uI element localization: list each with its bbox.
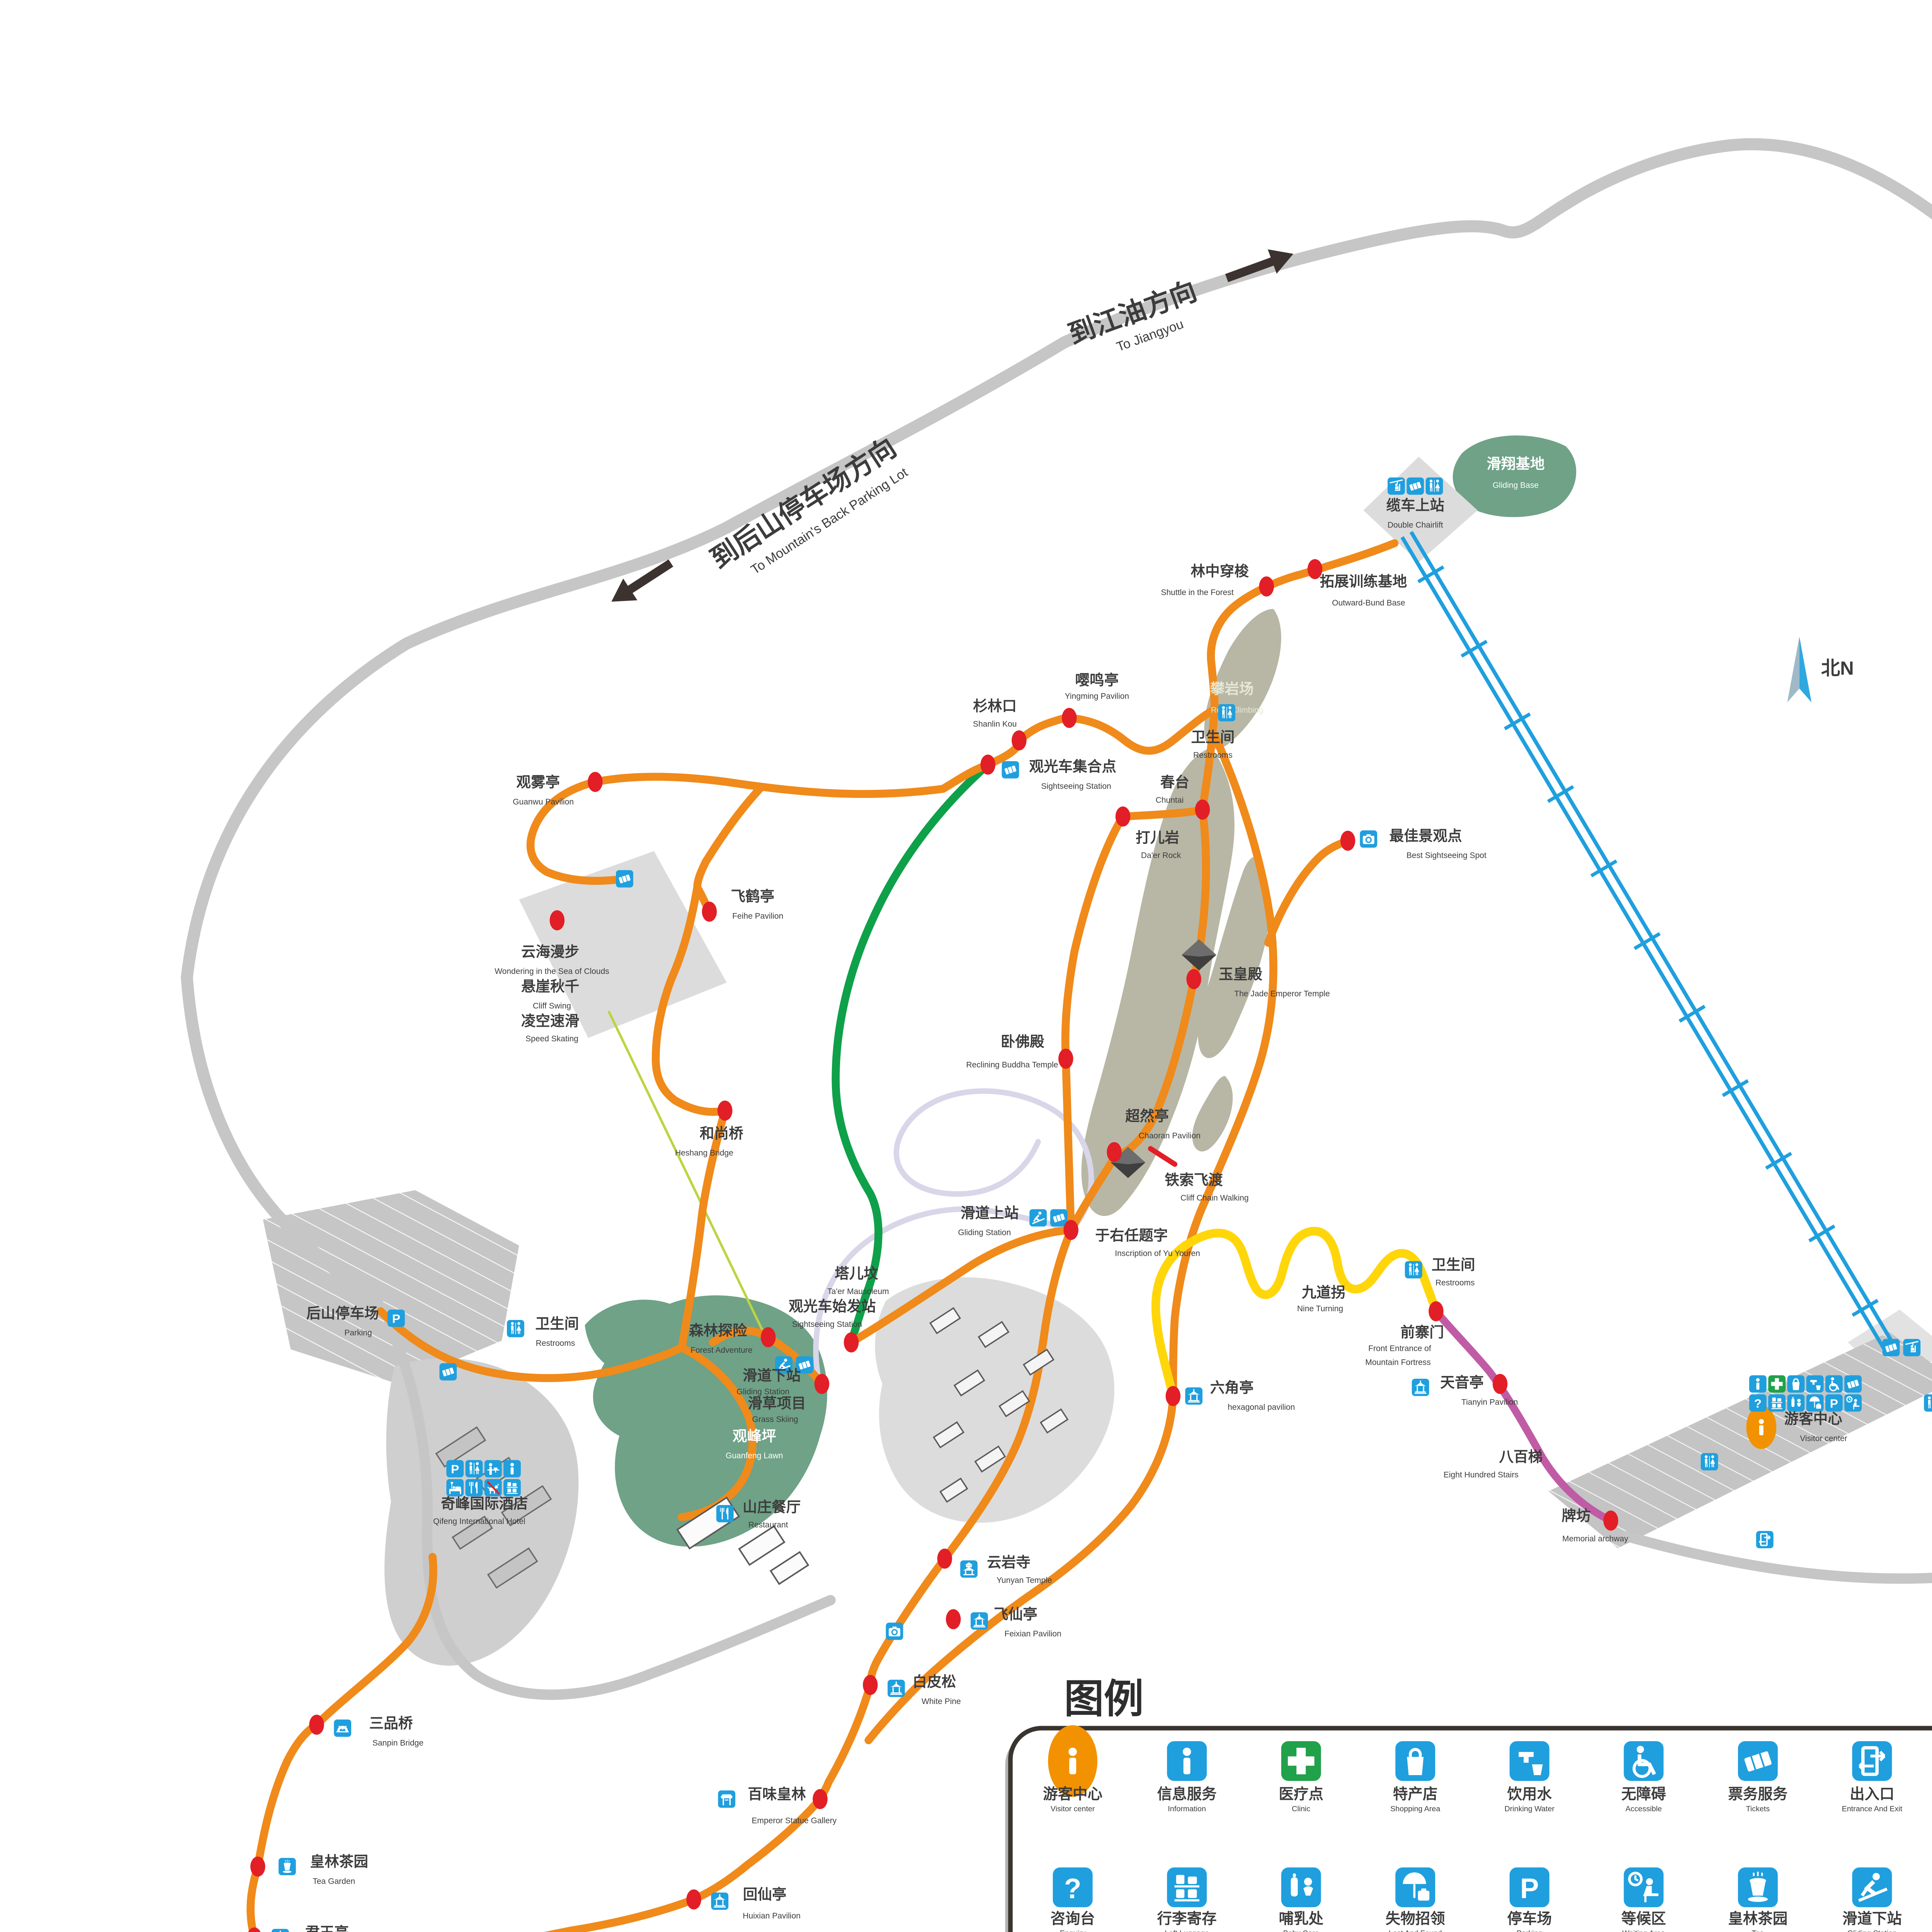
pavilion-icon	[888, 1680, 905, 1697]
sanpin-bridge-label-cn: 三品桥	[369, 1715, 413, 1731]
tianyin-pavilion-dot[interactable]	[1493, 1374, 1508, 1394]
feixian-pavilion[interactable]: 飞仙亭Feixian Pavilion	[946, 1606, 1061, 1638]
legend-item-baby-care: 哺乳处Baby Care	[1279, 1867, 1323, 1932]
restroom-west[interactable]: 卫生间Restrooms	[507, 1315, 579, 1348]
shuttle-forest-label-cn: 林中穿梭	[1191, 563, 1249, 579]
restroom-west-label-cn: 卫生间	[535, 1315, 579, 1332]
legend-label-en: Waiting Area	[1622, 1929, 1665, 1932]
hexagonal-pavilion-label-en: hexagonal pavilion	[1228, 1403, 1295, 1412]
ticket-icon	[1050, 1209, 1068, 1226]
tea-icon	[1738, 1867, 1778, 1907]
restroom-mid[interactable]: 卫生间Restrooms	[1405, 1257, 1475, 1321]
legend-label-en: Gliding Station	[1847, 1929, 1897, 1932]
legend-label-en: Drinking Water	[1505, 1804, 1555, 1813]
sightseeing-meeting-point-label-en: Sightseeing Station	[1041, 782, 1111, 791]
north-compass: 北N	[1787, 637, 1854, 702]
visitor-connector-road	[1626, 1522, 1932, 1579]
north-arrow-icon-right	[1799, 637, 1811, 702]
parking-icon	[446, 1460, 464, 1478]
villa-restaurant-label-cn: 山庄餐厅	[743, 1499, 801, 1515]
feihe-pavilion[interactable]: 飞鹤亭Feihe Pavilion	[702, 888, 784, 922]
shanlin-kou[interactable]: 杉林口Shanlin Kou	[973, 698, 1027, 750]
best-sightseeing-spot-label-en: Best Sightseeing Spot	[1406, 851, 1486, 860]
front-entrance-fortress[interactable]: 前寨门Front Entrance ofMountain Fortress	[1365, 1324, 1444, 1367]
yunyan-temple-dot[interactable]	[937, 1549, 952, 1569]
legend-label-cn: 停车场	[1507, 1910, 1552, 1927]
yingming-pavilion-dot[interactable]	[1062, 708, 1077, 728]
feihe-pavilion-dot[interactable]	[702, 901, 717, 922]
pavilion-icon	[1185, 1388, 1202, 1405]
legend-label-cn: 饮用水	[1507, 1786, 1552, 1803]
camera-icon	[886, 1622, 903, 1640]
visitor-icon	[1746, 1405, 1776, 1449]
daer-rock-dot[interactable]	[1116, 806, 1131, 827]
shuttle-forest-label-en: Shuttle in the Forest	[1161, 588, 1233, 597]
front-entrance-fortress-label-en2: Mountain Fortress	[1365, 1358, 1430, 1367]
emperor-statue-gallery-dot[interactable]	[813, 1789, 828, 1809]
question-icon	[1749, 1394, 1767, 1412]
cliff-chain-walking-label-cn: 铁索飞渡	[1165, 1172, 1223, 1188]
feihe-pavilion-label-en: Feihe Pavilion	[732, 912, 783, 920]
front-entrance-fortress-label-cn: 前寨门	[1400, 1324, 1444, 1340]
restroom-icon	[465, 1460, 483, 1478]
qifeng-hotel-label-en: Qifeng International Hotel	[433, 1517, 526, 1526]
wheelchair-icon	[1825, 1375, 1843, 1393]
outward-bound-base-label-cn: 拓展训练基地	[1320, 573, 1407, 590]
pavilion-icon	[1412, 1379, 1429, 1396]
restroom-west-label-en: Restrooms	[536, 1339, 575, 1348]
huixian-pavilion-label-cn: 回仙亭	[743, 1886, 787, 1903]
yu-youren-inscription-label-en: Inscription of Yu Youren	[1115, 1249, 1200, 1258]
guanwu-pavilion-label-cn: 观雾亭	[516, 774, 560, 790]
legend-item-enquiry: 咨询台Enquiry	[1050, 1867, 1095, 1932]
map-canvas[interactable]: ? P	[0, 0, 1932, 1932]
reclining-buddha-temple-label-en: Reclining Buddha Temple	[966, 1060, 1058, 1069]
shanlin-kou-label-en: Shanlin Kou	[973, 719, 1017, 728]
eight-hundred-stairs-label-en: Eight Hundred Stairs	[1444, 1470, 1519, 1479]
legend-label-cn: 信息服务	[1157, 1786, 1217, 1803]
sightseeing-meeting-point-label-cn: 观光车集合点	[1029, 759, 1116, 775]
cloud-sea-walk-dot[interactable]	[550, 910, 565, 930]
exit-vc[interactable]	[1756, 1531, 1774, 1548]
cliff-chain-walking[interactable]: 铁索飞渡Cliff Chain Walking	[1165, 1172, 1248, 1202]
legend-title: 图例	[1064, 1677, 1144, 1721]
chuntai-dot[interactable]	[1195, 799, 1210, 820]
waiting-icon	[1624, 1867, 1663, 1907]
legend-label-cn: 无障碍	[1621, 1786, 1666, 1803]
camera-icon	[1360, 830, 1377, 848]
cliff-swing-label-cn: 悬崖秋千	[521, 978, 579, 994]
info-icon	[1749, 1375, 1767, 1393]
nine-turning-label-cn: 九道拐	[1302, 1284, 1345, 1301]
restroom-icon	[1218, 704, 1235, 721]
nine-turning[interactable]: 九道拐Nine Turning	[1297, 1284, 1345, 1313]
photo-point-west[interactable]	[886, 1622, 903, 1640]
restroom-mid-label-en: Restrooms	[1435, 1278, 1475, 1287]
feixian-pavilion-dot[interactable]	[946, 1609, 961, 1629]
gliding-base-label-en: Gliding Base	[1493, 481, 1539, 490]
exit-icon	[1756, 1531, 1774, 1548]
guanwu-pavilion-label-en: Guanwu Pavilion	[513, 798, 574, 806]
daer-rock-label-cn: 打儿岩	[1136, 829, 1179, 845]
legend-label-en: Visitor center	[1051, 1804, 1095, 1813]
info-icon	[1167, 1741, 1207, 1781]
legend-label-en: Tickets	[1746, 1804, 1770, 1813]
legend-item-waiting-area: 等候区Waiting Area	[1621, 1867, 1666, 1932]
eight-hundred-stairs[interactable]: 八百梯Eight Hundred Stairs	[1444, 1449, 1543, 1479]
bag-icon	[1395, 1741, 1435, 1781]
yunyan-temple[interactable]: 云岩寺Yunyan Temple	[937, 1549, 1052, 1585]
taer-mausoleum-label-en: Ta'er Mausoleum	[827, 1287, 889, 1296]
restroom-vc-west[interactable]	[1701, 1453, 1718, 1471]
legend-label-cn: 皇林茶园	[1728, 1910, 1787, 1927]
visitor-center-label-cn: 游客中心	[1784, 1411, 1842, 1427]
cable-top-station-label-en: Double Chairlift	[1388, 520, 1443, 529]
luggage-icon	[1768, 1394, 1786, 1412]
white-pine-label-cn: 白皮松	[913, 1673, 956, 1690]
jade-emperor-temple-label-cn: 玉皇殿	[1219, 966, 1262, 982]
legend-label-cn: 医疗点	[1279, 1786, 1323, 1803]
legend-label-cn: 行李寄存	[1157, 1910, 1217, 1927]
rock-climbing-label-cn: 攀岩场	[1210, 680, 1254, 697]
tea-garden-label-cn: 皇林茶园	[310, 1854, 368, 1870]
gliding-lower-station-label-cn: 滑道下站	[743, 1367, 801, 1384]
north-label: 北N	[1821, 658, 1854, 679]
restroom-icon	[1426, 478, 1443, 495]
legend-label-cn: 咨询台	[1050, 1910, 1095, 1927]
guanfeng-lawn-label-cn: 观峰坪	[733, 1428, 776, 1444]
chuntai-label-cn: 春台	[1160, 774, 1189, 790]
huixian-pavilion-label-en: Huixian Pavilion	[743, 1912, 801, 1920]
heshang-bridge-label-cn: 和尚桥	[700, 1125, 743, 1141]
tianyin-pavilion[interactable]: 天音亭Tianyin Pavilion	[1412, 1374, 1518, 1407]
visitor-center-label-en: Visitor center	[1800, 1434, 1847, 1443]
legend-label-en: Entrance And Exit	[1842, 1804, 1903, 1813]
forest-adventure-label-cn: 森林探险	[689, 1322, 747, 1338]
ticket-icon	[1738, 1741, 1778, 1781]
speed-skating-label-cn: 凌空速滑	[521, 1013, 579, 1029]
grass-skiing[interactable]: 滑草项目Grass Skiing	[748, 1395, 806, 1424]
restroom-icon	[1405, 1261, 1422, 1279]
temple-icon	[960, 1560, 978, 1578]
legend-label-en: Enquiry	[1060, 1929, 1086, 1932]
tianyin-pavilion-label-en: Tianyin Pavilion	[1461, 1398, 1518, 1406]
walking-path-best-spot-spur	[1268, 841, 1348, 943]
cloud-sea-walk-label-cn: 云海漫步	[521, 944, 579, 960]
legend-label-en: Lost And Found	[1389, 1929, 1442, 1932]
back-parking-direction: 到后山停车场方向 To Mountain's Back Parking Lot	[604, 415, 913, 651]
cliff-swing[interactable]: 悬崖秋千Cliff Swing	[521, 978, 579, 1010]
sightseeing-departure-station-label-en: Sightseeing Station	[792, 1320, 862, 1329]
waiting-icon	[1844, 1394, 1862, 1412]
walking-path-feihe-branch	[656, 787, 761, 1348]
feixian-pavilion-label-cn: 飞仙亭	[994, 1606, 1037, 1622]
legend-label-en: Clinic	[1292, 1804, 1310, 1813]
glide-icon	[1029, 1209, 1047, 1226]
hexagonal-pavilion-label-cn: 六角亭	[1210, 1379, 1254, 1396]
ticket-icon	[1883, 1339, 1900, 1356]
heshang-bridge-label-en: Heshang Bridge	[675, 1149, 733, 1158]
restroom-vc-east[interactable]	[1924, 1394, 1932, 1412]
huixian-pavilion-dot[interactable]	[686, 1889, 701, 1910]
grass-skiing-label-cn: 滑草项目	[748, 1395, 806, 1411]
water-icon	[1806, 1375, 1824, 1393]
legend-item-drinking-water: 饮用水Drinking Water	[1505, 1741, 1555, 1813]
sanpin-bridge-label-en: Sanpin Bridge	[372, 1738, 423, 1747]
legend-box	[1010, 1728, 1932, 1932]
chaoran-pavilion-label-en: Chaoran Pavilion	[1139, 1131, 1201, 1140]
speed-skating-label-en: Speed Skating	[526, 1034, 578, 1043]
white-pine-label-en: White Pine	[922, 1697, 961, 1706]
glide-icon	[1852, 1867, 1892, 1907]
legend: 图例 游客中心Visitor center信息服务Information医疗点C…	[1005, 1677, 1932, 1932]
grass-skiing-label-en: Grass Skiing	[752, 1415, 798, 1424]
chairlift-icon	[1903, 1339, 1920, 1356]
legend-label-en: Tea	[1752, 1929, 1764, 1932]
hexagonal-pavilion-dot[interactable]	[1166, 1386, 1181, 1406]
cable-top-station[interactable]: 缆车上站Double Chairlift	[1386, 478, 1444, 530]
guanwu-pavilion[interactable]: 观雾亭Guanwu Pavilion	[513, 772, 603, 806]
ticket-icon	[1002, 761, 1019, 779]
cliff-swing-label-en: Cliff Swing	[533, 1002, 571, 1010]
gliding-upper-station-label-en: Gliding Station	[958, 1228, 1011, 1237]
restroom-icon	[1924, 1394, 1932, 1412]
shuttle-forest-dot[interactable]	[1259, 577, 1274, 597]
memorial-archway-label-en: Memorial archway	[1562, 1534, 1628, 1543]
tea-garden-dot[interactable]	[250, 1857, 265, 1877]
lost-icon	[1395, 1867, 1435, 1907]
best-sightseeing-spot-label-cn: 最佳景观点	[1389, 828, 1462, 844]
eight-hundred-stairs-label-cn: 八百梯	[1499, 1449, 1543, 1465]
forest-adventure-dot[interactable]	[761, 1327, 776, 1347]
emperor-statue-gallery-label-en: Emperor Statue Gallery	[752, 1816, 837, 1825]
sightseeing-departure-station-label-cn: 观光车始发站	[789, 1298, 876, 1315]
legend-item-clinic: 医疗点Clinic	[1279, 1741, 1323, 1813]
yunyan-temple-label-cn: 云岩寺	[987, 1554, 1031, 1570]
heshang-bridge-dot[interactable]	[718, 1100, 733, 1121]
back-mountain-parking-label-cn: 后山停车场	[306, 1305, 379, 1321]
best-sightseeing-spot[interactable]: 最佳景观点Best Sightseeing Spot	[1340, 828, 1486, 860]
nopets-icon	[485, 1479, 502, 1497]
yingming-pavilion-label-cn: 嘤鸣亭	[1075, 672, 1119, 688]
legend-label-cn: 票务服务	[1728, 1786, 1788, 1803]
gliding-base-label-cn: 滑翔基地	[1486, 456, 1544, 472]
bridge-icon	[334, 1719, 351, 1737]
hexagonal-pavilion[interactable]: 六角亭hexagonal pavilion	[1166, 1379, 1295, 1412]
memorial-archway-label-cn: 牌坊	[1562, 1507, 1591, 1524]
legend-label-cn: 哺乳处	[1279, 1910, 1323, 1927]
emperor-statue-gallery-label-cn: 百味皇林	[748, 1786, 806, 1802]
restroom-mid-label-cn: 卫生间	[1432, 1257, 1475, 1273]
ticket-icon	[1844, 1375, 1862, 1393]
cable-top-station-label-cn: 缆车上站	[1386, 497, 1444, 514]
forkknife-icon	[716, 1505, 734, 1522]
sightseeing-meeting-point-dot[interactable]	[981, 755, 996, 775]
ticket-icon	[1406, 478, 1424, 495]
jiangyou-direction: 到江油方向 To Jiangyou	[1064, 240, 1305, 368]
daer-rock-label-en: Da'er Rock	[1141, 851, 1181, 860]
feixian-pavilion-label-en: Feixian Pavilion	[1005, 1629, 1061, 1638]
restroom-north-label-en: Restrooms	[1193, 751, 1233, 760]
speed-skating[interactable]: 凌空速滑Speed Skating	[521, 1013, 579, 1043]
villa-restaurant-label-en: Restaurant	[748, 1520, 788, 1529]
legend-label-cn: 游客中心	[1043, 1786, 1102, 1803]
legend-item-parking: 停车场Parking	[1507, 1867, 1552, 1932]
legend-label-en: Left Luggage	[1165, 1929, 1209, 1932]
tea-garden[interactable]: 皇林茶园Tea Garden	[250, 1854, 368, 1886]
lost-icon	[1806, 1394, 1824, 1412]
cloud-sea-walk-label-en: Wondering in the Sea of Clouds	[495, 967, 609, 976]
baby-icon	[1281, 1867, 1321, 1907]
yunyan-temple-label-en: Yunyan Temple	[997, 1576, 1052, 1585]
question-icon	[1053, 1867, 1093, 1907]
ticket-icon	[616, 870, 633, 888]
yu-youren-inscription-label-cn: 于右任题字	[1095, 1227, 1168, 1243]
bag-icon	[1787, 1375, 1804, 1393]
pavilion-icon	[971, 1612, 988, 1630]
parking-icon	[1510, 1867, 1549, 1907]
water-icon	[1510, 1741, 1549, 1781]
baby-icon	[1787, 1394, 1804, 1412]
chuntai-label-en: Chuntai	[1156, 796, 1184, 804]
legend-label-cn: 滑道下站	[1842, 1910, 1902, 1927]
restroom-mid-dot[interactable]	[1429, 1301, 1444, 1321]
reclining-buddha-temple-dot[interactable]	[1058, 1049, 1073, 1069]
legend-label-cn: 等候区	[1621, 1910, 1666, 1927]
guanfeng-lawn[interactable]: 观峰坪Guanfeng Lawn	[726, 1428, 783, 1460]
taer-mausoleum-label-cn: 塔儿坟	[835, 1265, 878, 1281]
outward-bound-base-label-en: Outward-Bund Base	[1332, 599, 1405, 607]
pavilion-icon	[711, 1893, 728, 1910]
junwang-pavilion[interactable]: 君王亭Junwang Pavilion	[247, 1924, 374, 1932]
feihe-pavilion-label-cn: 飞鹤亭	[731, 888, 774, 905]
legend-item-accessible: 无障碍Accessible	[1621, 1741, 1666, 1813]
legend-label-cn: 特产店	[1393, 1786, 1438, 1803]
ticket-icon	[439, 1363, 457, 1381]
archicon-icon	[718, 1791, 735, 1808]
legend-label-en: Baby Care	[1283, 1929, 1319, 1932]
restroom-icon	[1701, 1453, 1718, 1471]
tianyin-pavilion-label-cn: 天音亭	[1440, 1374, 1484, 1391]
gliding-upper-station-label-cn: 滑道上站	[961, 1205, 1019, 1221]
emperor-statue-gallery[interactable]: 百味皇林Emperor Statue Gallery	[718, 1786, 837, 1825]
tea-icon	[279, 1858, 296, 1875]
memorial-archway-dot[interactable]	[1603, 1510, 1618, 1531]
legend-label-cn: 出入口	[1850, 1786, 1895, 1803]
reception-icon	[485, 1460, 502, 1478]
restroom-icon	[507, 1320, 524, 1337]
pavilion-icon	[272, 1929, 289, 1932]
cliff-chain-walking-label-en: Cliff Chain Walking	[1180, 1194, 1249, 1202]
gliding-lower-station-dot[interactable]	[815, 1374, 830, 1394]
yingming-pavilion-label-en: Yingming Pavilion	[1065, 692, 1129, 701]
cross-icon	[1281, 1741, 1321, 1781]
nine-turning-label-en: Nine Turning	[1297, 1304, 1343, 1313]
jade-emperor-temple-label-en: The Jade Emperor Temple	[1234, 990, 1330, 998]
junwang-pavilion-label-cn: 君王亭	[305, 1924, 349, 1932]
jade-emperor-temple-dot[interactable]	[1186, 969, 1201, 989]
legend-label-en: Parking	[1517, 1929, 1543, 1932]
chaoran-pavilion-label-cn: 超然亭	[1125, 1108, 1169, 1124]
yu-youren-inscription-dot[interactable]	[1063, 1220, 1078, 1240]
back-parking-label-cn: 到后山停车场方向	[705, 432, 901, 574]
legend-label-en: Accessible	[1626, 1804, 1662, 1813]
sightseeing-road	[836, 765, 988, 1342]
parking-icon	[1825, 1394, 1843, 1412]
parking-icon	[388, 1310, 405, 1327]
white-pine-dot[interactable]	[863, 1675, 878, 1695]
guanfeng-lawn-label-en: Guanfeng Lawn	[726, 1451, 783, 1460]
cross-icon	[1768, 1375, 1786, 1393]
restroom-north-label-cn: 卫生间	[1191, 729, 1235, 745]
back-parking-hatch	[263, 1190, 519, 1384]
north-arrow-icon	[1787, 637, 1799, 702]
info-icon	[503, 1460, 521, 1478]
shanlin-kou-dot[interactable]	[1012, 730, 1027, 750]
legend-label-en: Information	[1168, 1804, 1206, 1813]
chaoran-pavilion-dot[interactable]	[1107, 1142, 1122, 1162]
legend-label-cn: 失物招领	[1386, 1910, 1446, 1927]
guanwu-pavilion-dot[interactable]	[588, 772, 603, 792]
yu-youren-inscription[interactable]: 于右任题字Inscription of Yu Youren	[1063, 1220, 1200, 1258]
legend-item-shopping-area: 特产店Shopping Area	[1390, 1741, 1440, 1813]
luggage-icon	[503, 1479, 521, 1497]
qifeng-hotel-label-cn: 奇峰国际酒店	[441, 1495, 528, 1512]
sanpin-bridge-dot[interactable]	[309, 1715, 324, 1735]
taer-mausoleum[interactable]: 塔儿坟Ta'er Mausoleum	[827, 1265, 889, 1296]
tea-garden-label-en: Tea Garden	[313, 1877, 355, 1886]
legend-label-en: Shopping Area	[1390, 1804, 1440, 1813]
reclining-buddha-temple-label-cn: 卧佛殿	[1001, 1034, 1044, 1050]
sightseeing-departure-station-dot[interactable]	[844, 1332, 859, 1352]
forkknife-icon	[465, 1479, 483, 1497]
cable-car-line	[1402, 532, 1894, 1350]
front-entrance-fortress-label-en: Front Entrance of	[1368, 1344, 1431, 1353]
forest-adventure-label-en: Forest Adventure	[690, 1346, 752, 1355]
best-sightseeing-spot-dot[interactable]	[1340, 831, 1355, 851]
reclining-buddha-temple[interactable]: 卧佛殿Reclining Buddha Temple	[966, 1034, 1073, 1070]
back-mountain-parking-label-en: Parking	[344, 1328, 372, 1337]
chairlift-icon	[1388, 478, 1405, 495]
luggage-icon	[1167, 1867, 1207, 1907]
scenic-area-map: ? P	[0, 0, 1932, 1932]
shanlin-kou-label-cn: 杉林口	[973, 698, 1017, 714]
ticket-point-west[interactable]	[439, 1363, 457, 1381]
wheelchair-icon	[1624, 1741, 1663, 1781]
bed-icon	[446, 1479, 464, 1497]
exit-icon	[1852, 1741, 1892, 1781]
